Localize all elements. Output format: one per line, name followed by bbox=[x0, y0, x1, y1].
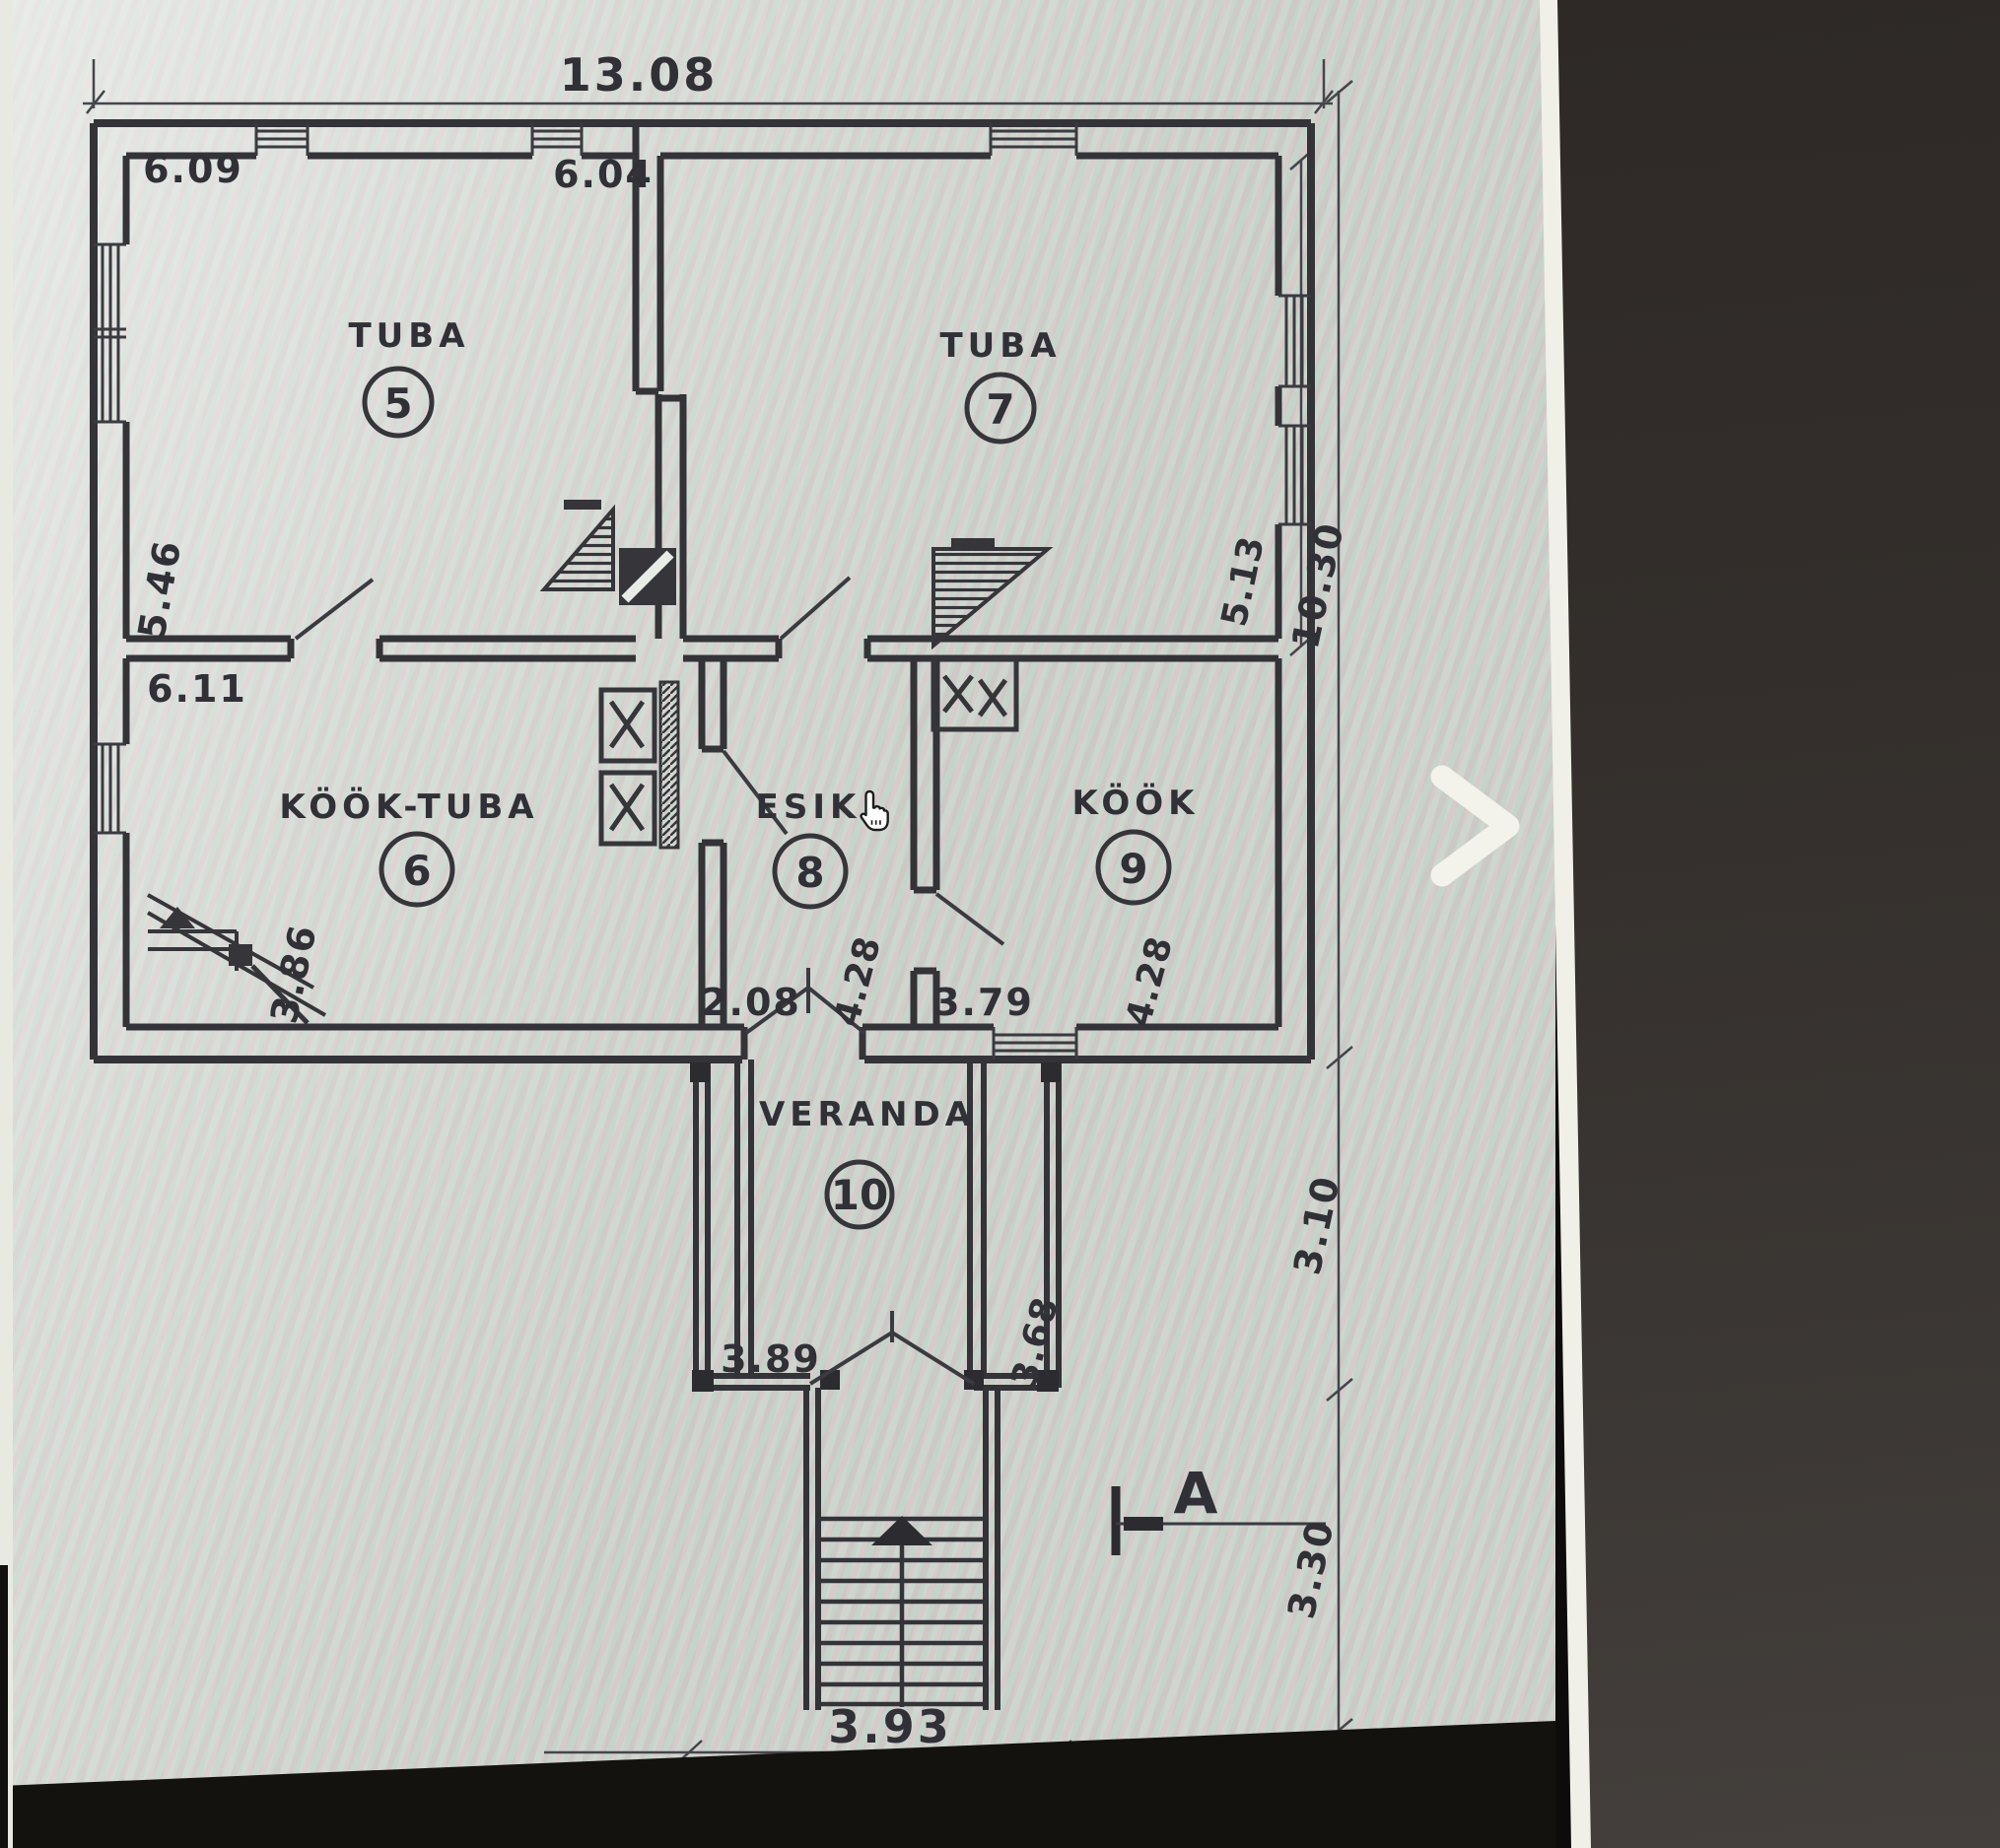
hand-cursor-icon bbox=[862, 791, 888, 830]
screen-photo: A TUBA 5 TUBA 7 KÖÖK-TUBA 6 ESIK 8 KÖÖK … bbox=[0, 0, 2000, 1848]
overlay-ui bbox=[0, 0, 2000, 1848]
next-arrow-button[interactable] bbox=[1442, 777, 1508, 875]
